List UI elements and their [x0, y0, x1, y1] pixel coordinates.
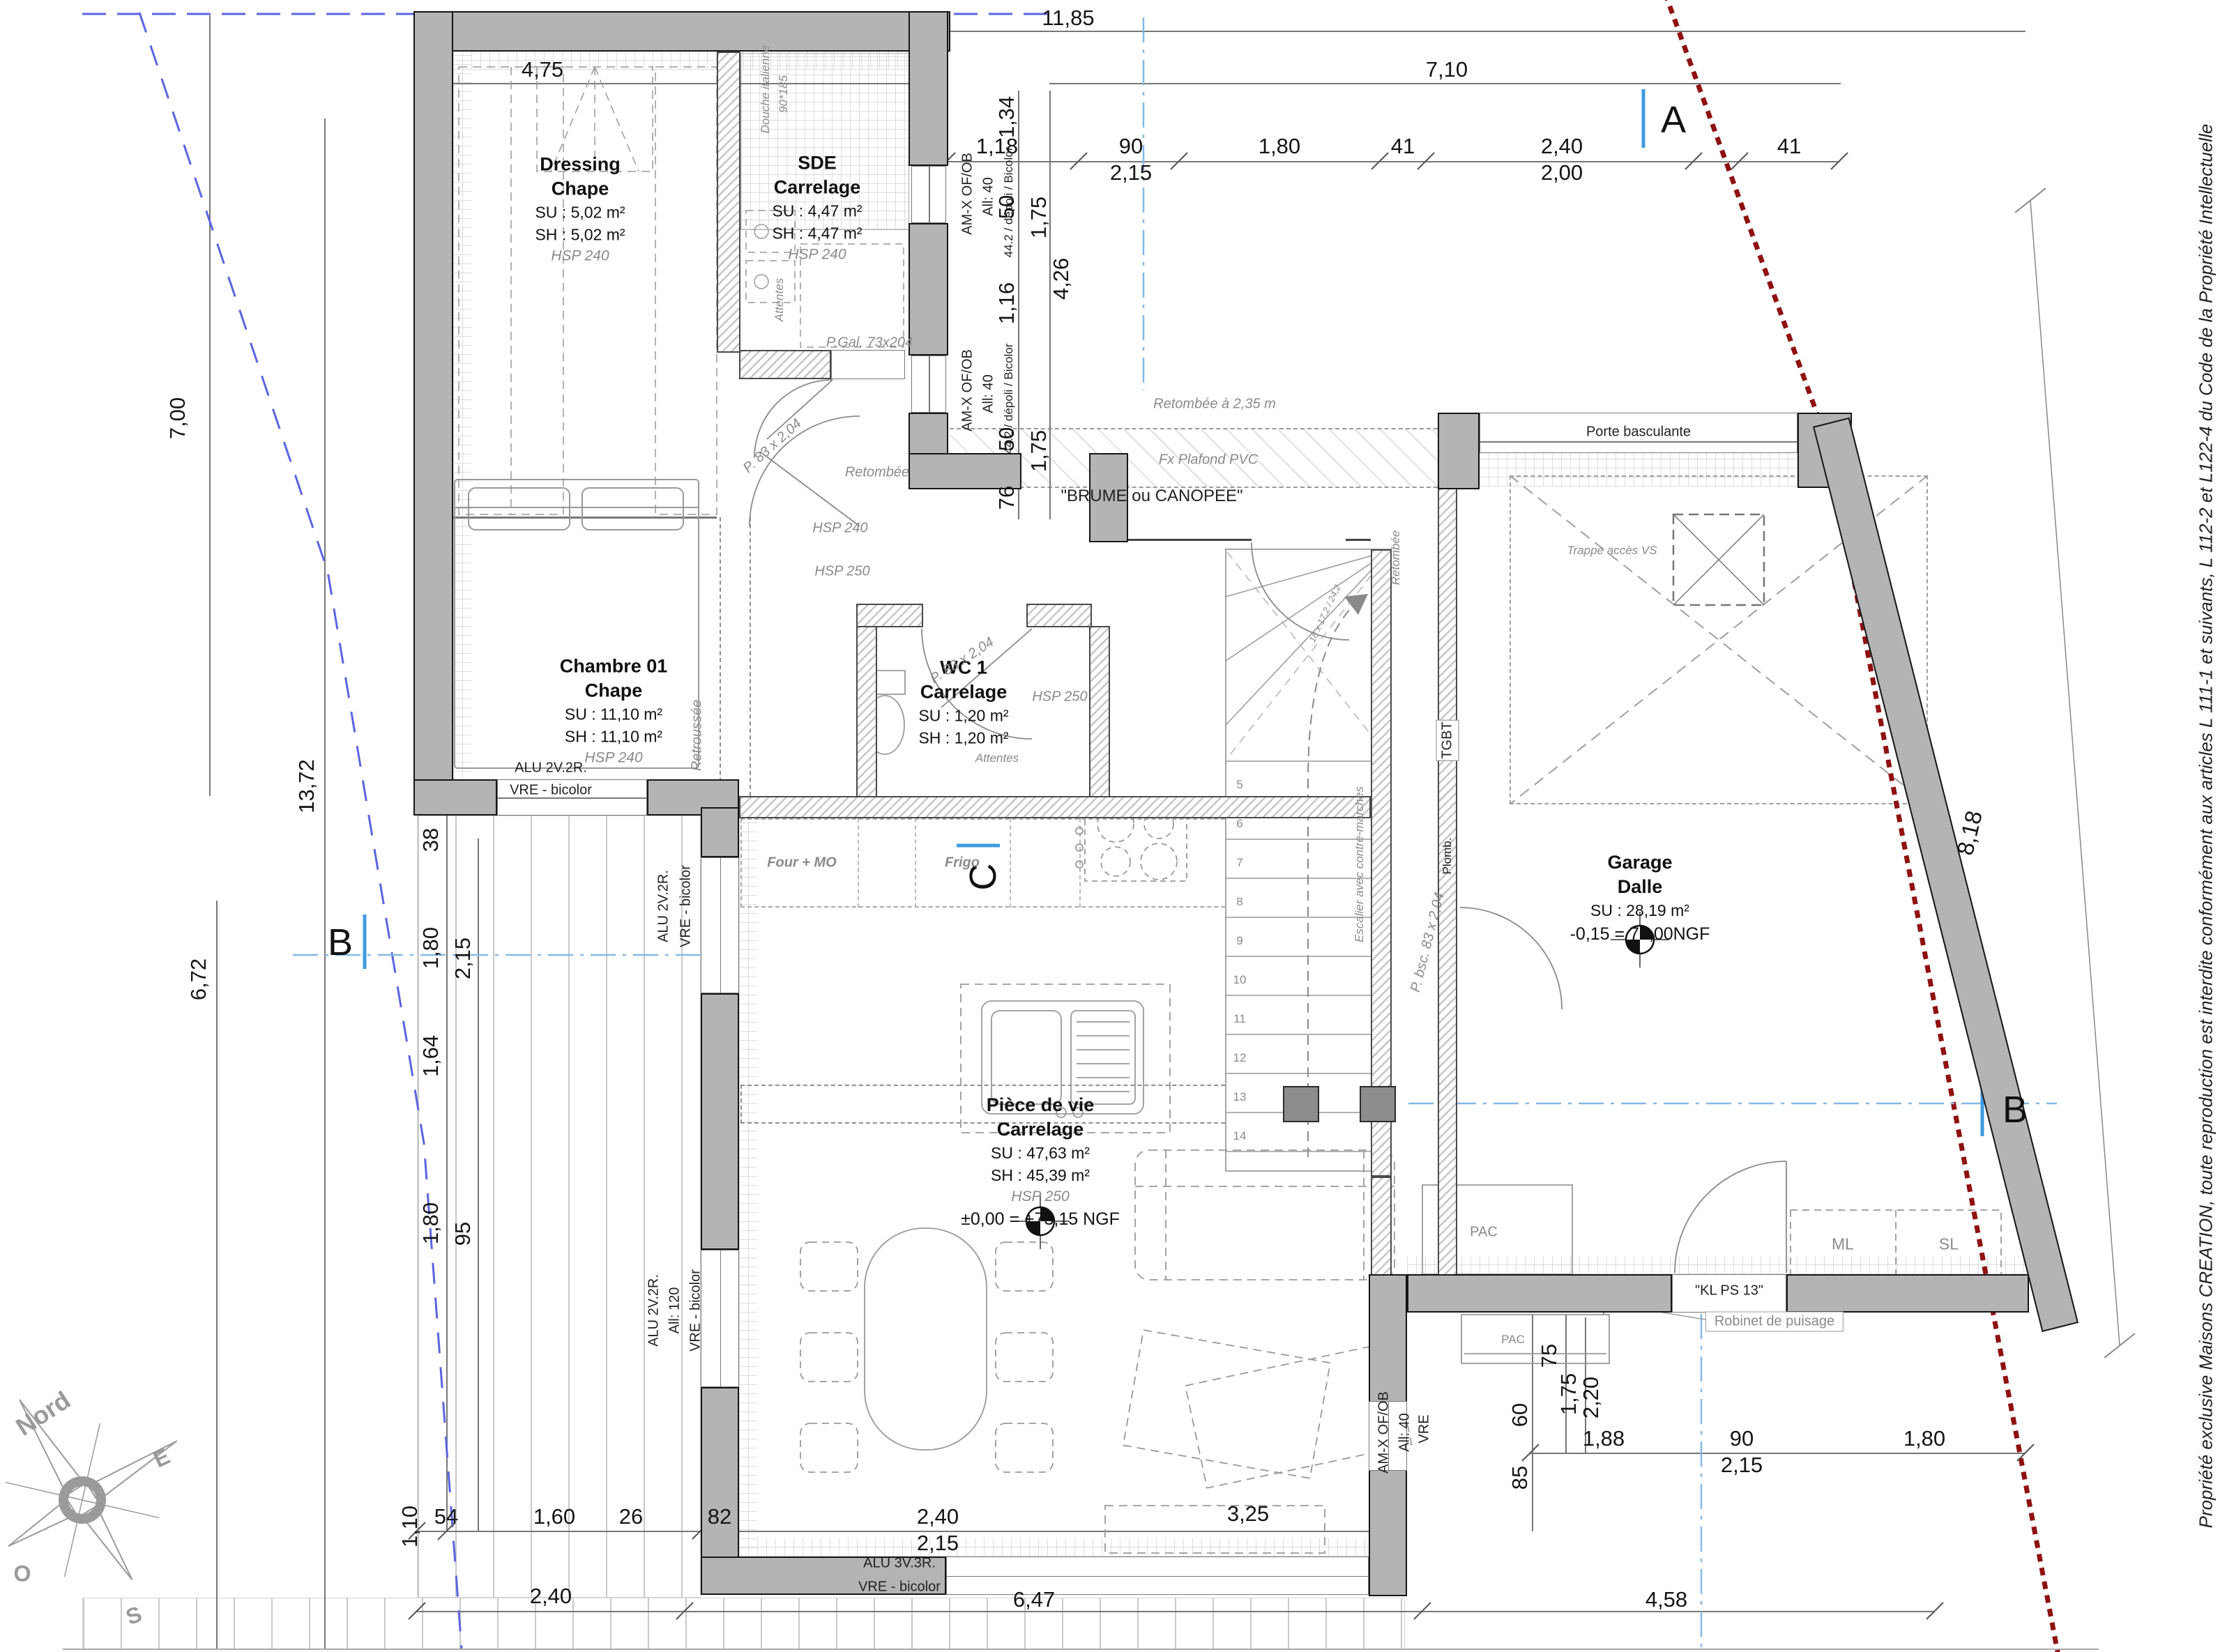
- room-finish: Carrelage: [961, 1117, 1120, 1142]
- dim-6-72: 6,72: [186, 958, 211, 1000]
- dim-41a: 41: [1391, 134, 1415, 159]
- sl-label: SL: [1939, 1235, 1959, 1254]
- room-hsp: HSP 250: [961, 1186, 1120, 1206]
- room-dressing: Dressing Chape SU : 5,02 m² SH : 5,02 m²…: [535, 153, 625, 266]
- room-su: SU : 11,10 m²: [560, 703, 668, 726]
- property-line-1: [1665, 0, 1828, 445]
- wall-stair-west: [1371, 549, 1392, 1177]
- survey-tick: [2104, 1333, 2135, 1358]
- window-label-vrebic-liv2: VRE - bicolor: [688, 1269, 704, 1352]
- wall-west: [413, 11, 453, 814]
- dim-90r: 90: [1730, 1426, 1754, 1451]
- dim-50a: 50: [994, 195, 1019, 219]
- dim-82: 82: [708, 1504, 731, 1529]
- room-su: SU : 4,47 m²: [772, 200, 862, 222]
- room-sde: SDE Carrelage SU : 4,47 m² SH : 4,47 m² …: [772, 151, 862, 265]
- wall-kitchen-north: [739, 796, 1371, 818]
- dim-1-34: 1,34: [994, 96, 1019, 138]
- douche-label-1: Douche italienne: [759, 45, 773, 134]
- room-sh: SH : 11,10 m²: [560, 726, 668, 748]
- wall-garage-south-east: [1786, 1274, 2029, 1313]
- window-spec-all40-2: All: 40: [981, 374, 997, 413]
- dim-75: 75: [1537, 1344, 1562, 1368]
- dim-2-15: 2,15: [1110, 160, 1152, 185]
- dim-85: 85: [1507, 1466, 1533, 1490]
- compass-rose: [0, 1340, 227, 1626]
- window-living-west-2: [701, 1250, 739, 1387]
- ml-label: ML: [1832, 1235, 1854, 1254]
- room-name: Garage: [1570, 850, 1710, 875]
- frigo-label: Frigo: [945, 855, 980, 871]
- survey-line: [2030, 201, 2120, 1345]
- room-name: Chambre 01: [560, 655, 668, 679]
- dim-50b: 50: [994, 427, 1019, 451]
- window-label-alu3: ALU 3V.3R.: [863, 1556, 936, 1572]
- pac1-label: PAC: [1470, 1225, 1498, 1241]
- door-panel-line: [1480, 441, 1797, 443]
- retombee235-label: Retombée à 2,35 m: [1153, 397, 1276, 413]
- window-label-vrebic-chambre: VRE - bicolor: [510, 783, 592, 799]
- window-frame-line: [720, 1251, 722, 1386]
- dim-90: 90: [1119, 134, 1143, 159]
- dim-95: 95: [450, 1222, 476, 1246]
- compass-west-label: O: [14, 1561, 31, 1587]
- wardrobes: [459, 67, 717, 514]
- dim-26: 26: [619, 1504, 643, 1529]
- plomb-label: Plomb.: [1441, 838, 1454, 875]
- door-arc-garage: [1460, 908, 1562, 1009]
- attentes-wc-label: Attentes: [975, 751, 1019, 765]
- dim-1-75r: 1,75: [1556, 1373, 1581, 1415]
- klps-label: "KL PS 13": [1695, 1283, 1763, 1299]
- structural-post-1: [1283, 1086, 1319, 1122]
- room-su: SU : 47,63 m²: [961, 1142, 1120, 1164]
- dim-1-80a: 1,80: [418, 927, 443, 969]
- wall-living-west-2: [701, 993, 739, 1250]
- window-spec-amx-1: AM-X OF/OB: [960, 153, 976, 235]
- dim-4-26: 4,26: [1049, 258, 1074, 300]
- room-hsp: HSP 240: [535, 246, 625, 266]
- dim-2-20: 2,20: [1579, 1377, 1604, 1418]
- opening-pgal-door: [831, 350, 905, 379]
- brume-label: "BRUME ou CANOPEE": [1061, 487, 1242, 506]
- window-amx-lower: [911, 355, 946, 413]
- dim-76: 76: [994, 486, 1019, 510]
- dim-1-10: 1,10: [397, 1506, 423, 1547]
- pgal-door-label: P.Gal. 73x204: [826, 335, 913, 351]
- wall-garage-north-west: [1438, 413, 1480, 489]
- door-leaf-dressing: [760, 452, 860, 526]
- room-sh: SH : 5,02 m²: [535, 224, 625, 246]
- wall-chambre-sill-west: [413, 779, 497, 816]
- wall-garage-south-west: [1407, 1274, 1672, 1313]
- window-label-vrebic-s: VRE - bicolor: [858, 1580, 941, 1596]
- drawing-layer: [0, 0, 2227, 1652]
- wall-east-top-1: [909, 11, 948, 166]
- wall-porch-L: [909, 453, 1021, 489]
- dim-1-88: 1,88: [1583, 1426, 1625, 1451]
- sofa: [1105, 1150, 1412, 1553]
- room-finish: Carrelage: [918, 680, 1008, 705]
- retombee-label: Retombée: [845, 465, 909, 481]
- dining-set: [800, 1228, 1053, 1472]
- porte-basculante-label: Porte basculante: [1586, 425, 1691, 441]
- dim-3-25: 3,25: [1227, 1501, 1269, 1527]
- room-finish: Dalle: [1570, 875, 1710, 899]
- attentes-sde-label: Attentes: [773, 278, 786, 321]
- window-living-west-1: [701, 857, 739, 993]
- window-spec-all40-3: All: 40: [1397, 1413, 1413, 1452]
- window-spec-vre-3: VRE: [1417, 1414, 1433, 1443]
- wall-wc-west: [856, 626, 877, 799]
- dim-2-15b: 2,15: [917, 1531, 959, 1556]
- dim-1-80r: 1,80: [1903, 1426, 1945, 1451]
- window-label-all120-liv2: All: 120: [667, 1287, 683, 1334]
- room-chambre: Chambre 01 Chape SU : 11,10 m² SH : 11,1…: [560, 655, 668, 768]
- window-amx-upper: [911, 166, 946, 223]
- window-spec-amx-2: AM-X OF/OB: [960, 349, 976, 431]
- dim-1-75b: 1,75: [1026, 430, 1051, 472]
- dim-4-58: 4,58: [1645, 1587, 1687, 1612]
- dim-4-75: 4,75: [522, 57, 563, 82]
- pac2-label: PAC: [1501, 1333, 1525, 1347]
- dim-1-16: 1,16: [994, 282, 1019, 324]
- dim-1-80b: 1,80: [418, 1202, 443, 1244]
- window-frame-line: [720, 858, 722, 993]
- door-arc-dressing: [750, 416, 860, 526]
- dim-38: 38: [418, 828, 443, 852]
- floor-plan: Dressing Chape SU : 5,02 m² SH : 5,02 m²…: [0, 0, 2227, 1652]
- window-living-south: [946, 1557, 1369, 1595]
- window-frame-line: [929, 356, 930, 412]
- section-marker-b-left: B: [328, 921, 353, 964]
- retombee-vert-label: Retombée: [1389, 530, 1403, 585]
- window-frame-line: [947, 1576, 1368, 1577]
- wall-sde-south: [739, 350, 831, 379]
- dim-1-64: 1,64: [418, 1035, 443, 1077]
- wall-living-west-1: [701, 807, 739, 857]
- room-name: SDE: [772, 151, 862, 176]
- wall-hall-living-east: [1371, 1177, 1392, 1276]
- survey-tick: [2015, 188, 2046, 213]
- window-label-vrebic-liv1: VRE - bicolor: [678, 865, 694, 947]
- wall-dressing-sde: [717, 52, 740, 353]
- wall-north: [413, 11, 950, 52]
- dim-13-72: 13,72: [294, 759, 319, 813]
- room-hsp: HSP 240: [772, 245, 862, 264]
- door-arc-klps: [1675, 1161, 1786, 1273]
- section-marker-a: A: [1661, 98, 1686, 142]
- room-name: Dressing: [535, 153, 625, 177]
- room-sh: SH : 45,39 m²: [961, 1164, 1120, 1186]
- escalier-label: Escalier avec contre-marches: [1353, 786, 1367, 942]
- hsp250-wc-label: HSP 250: [1032, 689, 1087, 705]
- room-finish: Chape: [535, 177, 625, 201]
- dim-2-15a: 2,15: [450, 938, 476, 979]
- dim-1-60: 1,60: [533, 1504, 575, 1529]
- room-sh: SH : 4,47 m²: [772, 222, 862, 245]
- room-su: SU : 5,02 m²: [535, 201, 625, 224]
- robinet-label: Robinet de puisage: [1705, 1312, 1844, 1332]
- dim-54: 54: [434, 1504, 458, 1529]
- section-marker-b-right: B: [2002, 1088, 2028, 1131]
- dim-6-47: 6,47: [1013, 1587, 1055, 1612]
- room-garage: Garage Dalle SU : 28,19 m² -0,15 = 73,00…: [1570, 850, 1710, 948]
- window-label-alu2-liv1: ALU 2V.2R.: [656, 870, 672, 942]
- tgbt-label: TGBT: [1436, 719, 1459, 760]
- hsp250-label: HSP 250: [814, 564, 869, 580]
- window-label-alu2-chambre: ALU 2V.2R.: [515, 760, 587, 777]
- window-spec-amx-3: AM-X OF/OB: [1376, 1391, 1392, 1474]
- room-su: SU : 28,19 m²: [1570, 899, 1710, 921]
- room-su: SU : 1,20 m²: [918, 705, 1008, 727]
- dim-2-40l: 2,40: [530, 1584, 572, 1609]
- room-piece-de-vie: Pièce de vie Carrelage SU : 47,63 m² SH …: [961, 1093, 1120, 1232]
- wall-wc-north-west: [856, 604, 923, 627]
- wall-hall-west: [1089, 626, 1110, 799]
- four-mo-label: Four + MO: [767, 855, 836, 871]
- dim-2-00: 2,00: [1541, 160, 1583, 185]
- dim-41b: 41: [1777, 134, 1801, 159]
- copyright-text: Propriété exclusive Maisons CREATION, to…: [2196, 124, 2217, 1529]
- dim-11-85: 11,85: [1042, 6, 1094, 31]
- wall-garage-west: [1438, 488, 1457, 1276]
- douche-label-2: 90*185: [777, 75, 791, 113]
- room-finish: Carrelage: [772, 176, 862, 200]
- wall-wc-north-east: [1026, 604, 1092, 627]
- hsp240-label: HSP 240: [812, 521, 867, 537]
- dim-2-40: 2,40: [1541, 134, 1583, 159]
- stair-numbers: 5 6 7 8 9 10 11 12 13 14: [1233, 765, 1247, 1156]
- dim-ticks: [409, 153, 2034, 1619]
- dim-2-15r: 2,15: [1721, 1453, 1763, 1478]
- dim-1-75a: 1,75: [1026, 197, 1051, 238]
- room-name: Pièce de vie: [961, 1093, 1120, 1117]
- structural-post-2: [1360, 1086, 1396, 1122]
- retroussee-label: Retroussée: [690, 700, 706, 771]
- window-frame-line: [929, 167, 930, 222]
- wall-east-top-2: [909, 223, 948, 355]
- room-level: -0,15 = 73,00NGF: [1570, 921, 1710, 948]
- trappe-label: Trappe accès VS: [1567, 544, 1657, 558]
- dim-60: 60: [1507, 1403, 1533, 1427]
- dim-7-00: 7,00: [165, 397, 190, 439]
- dim-1-80: 1,80: [1259, 134, 1300, 159]
- room-finish: Chape: [560, 679, 668, 703]
- dim-2-40b: 2,40: [917, 1504, 959, 1529]
- room-level: ±0,00 = +73,15 NGF: [961, 1207, 1120, 1233]
- window-label-alu2-liv2: ALU 2V.2R.: [646, 1274, 662, 1347]
- dim-7-10: 7,10: [1426, 57, 1468, 82]
- room-sh: SH : 1,20 m²: [918, 727, 1008, 749]
- fxplafond-label: Fx Plafond PVC: [1159, 452, 1258, 468]
